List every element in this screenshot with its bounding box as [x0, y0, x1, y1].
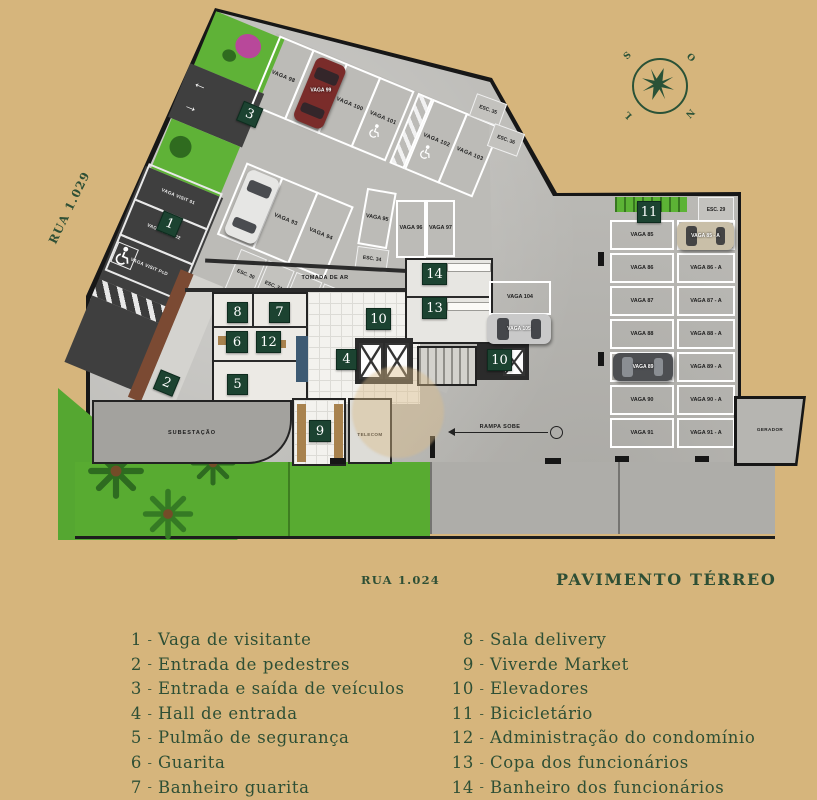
compass-l: L	[624, 109, 635, 120]
page-title: PAVIMENTO TÉRREO	[556, 570, 776, 589]
legend-label: Bicicletário	[490, 706, 593, 723]
marker-8-delivery-room: 8	[227, 302, 248, 323]
parking-stall: VAGA 91	[610, 418, 674, 448]
substation-label: SUBESTAÇÃO	[94, 430, 290, 437]
legend-item: 10 - Elevadores	[448, 677, 755, 702]
parking-stall: VAGA 86 - A	[677, 253, 735, 283]
legend-item: 7 - Banheiro guarita	[116, 776, 405, 800]
compass-o: O	[684, 53, 696, 65]
parking-stall: VAGA 88 - A	[677, 319, 735, 349]
marker-10-elevators: 10	[487, 349, 512, 371]
legend-dash: -	[474, 634, 490, 647]
legend-label: Hall de entrada	[158, 706, 298, 723]
legend-dash: -	[474, 658, 490, 671]
ramp-arrow-line	[452, 432, 548, 433]
legend-number: 3	[116, 681, 142, 698]
wall-segment	[598, 352, 604, 366]
marker-6-guardhouse: 6	[226, 331, 248, 353]
street-name-left: RUA 1.029	[46, 169, 93, 246]
compass-n: N	[683, 106, 695, 118]
legend-item: 9 - Viverde Market	[448, 653, 755, 678]
parking-stall: VAGA 90 - A	[677, 385, 735, 415]
marker-14-staff-bathroom: 14	[422, 263, 447, 285]
right-parking-grid: VAGA 85VAGA 85 - AVAGA 86VAGA 86 - AVAGA…	[610, 220, 735, 448]
parking-stall: VAGA 91 - A	[677, 418, 735, 448]
entry-arrow-icon: →	[182, 97, 202, 117]
ramp-marker-circle	[550, 426, 563, 439]
marker-9-market: 9	[309, 420, 331, 442]
legend-item: 12 - Administração do condomínio	[448, 726, 755, 751]
marker-13-staff-pantry: 13	[422, 297, 447, 319]
legend-number: 14	[448, 780, 474, 797]
car-silver: VAGA 105	[487, 314, 551, 344]
legend-dash: -	[142, 732, 158, 745]
legend-column-left: 1 - Vaga de visitante 2 - Entrada de ped…	[116, 628, 405, 800]
wall-segment	[695, 456, 709, 462]
legend-dash: -	[142, 757, 158, 770]
legend-number: 8	[448, 632, 474, 649]
staff-rooms	[405, 258, 493, 344]
parking-stall: VAGA 87 - A	[677, 286, 735, 316]
legend-item: 8 - Sala delivery	[448, 628, 755, 653]
air-intake-label: TOMADA DE AR	[290, 275, 360, 282]
marker-11-bike-storage: 11	[637, 201, 661, 223]
palm-tree-icon	[140, 486, 196, 542]
legend-label: Copa dos funcionários	[490, 755, 689, 772]
shrub	[166, 133, 195, 162]
legend-dash: -	[142, 708, 158, 721]
legend-number: 10	[448, 681, 474, 698]
car-label: VAGA 89	[613, 364, 673, 370]
legend-item: 13 - Copa dos funcionários	[448, 751, 755, 776]
substation-room: SUBESTAÇÃO	[92, 400, 292, 464]
compass-rose: S O L N	[622, 48, 698, 124]
generator-room: GERADOR	[737, 399, 803, 463]
generator-label: GERADOR	[737, 427, 803, 433]
legend-number: 11	[448, 706, 474, 723]
marker-7-guard-bathroom: 7	[269, 302, 290, 323]
legend-number: 7	[116, 780, 142, 797]
legend-number: 5	[116, 730, 142, 747]
legend-item: 11 - Bicicletário	[448, 702, 755, 727]
legend-dash: -	[142, 781, 158, 794]
legend-item: 6 - Guarita	[116, 751, 405, 776]
wall-segment	[615, 456, 629, 462]
parking-stall: VAGA 97	[426, 200, 455, 257]
car-label: VAGA 99	[305, 87, 337, 93]
car-label: VAGA 85 - A	[677, 233, 734, 239]
marker-5-security-airlock: 5	[227, 374, 248, 395]
legend-number: 4	[116, 706, 142, 723]
parking-stall: VAGA 85	[610, 220, 674, 250]
legend-item: 5 - Pulmão de segurança	[116, 726, 405, 751]
ramp-label: RAMPA SOBE	[470, 424, 530, 431]
legend-number: 13	[448, 755, 474, 772]
legend-item: 2 - Entrada de pedestres	[116, 653, 405, 678]
legend-label: Viverde Market	[490, 657, 629, 674]
sidewalk-joint	[430, 462, 432, 534]
legend-label: Administração do condomínio	[490, 730, 755, 747]
wall-segment	[330, 458, 346, 464]
legend-item: 1 - Vaga de visitante	[116, 628, 405, 653]
legend-label: Banheiro dos funcionários	[490, 780, 724, 797]
legend-number: 6	[116, 755, 142, 772]
legend-label: Banheiro guarita	[158, 780, 310, 797]
legend-dash: -	[142, 683, 158, 696]
ramp-arrow-head	[444, 428, 455, 436]
parking-stall: VAGA 87	[610, 286, 674, 316]
legend-number: 1	[116, 632, 142, 649]
car-label: VAGA 105	[487, 326, 551, 332]
marker-4-entrance-hall: 4	[336, 349, 357, 370]
legend-dash: -	[474, 757, 490, 770]
wall-segment	[598, 252, 604, 266]
sidewalk-joint	[618, 462, 620, 534]
car-dark: VAGA 89	[613, 353, 673, 381]
legend-dash: -	[474, 781, 490, 794]
legend-label: Vaga de visitante	[158, 632, 312, 649]
compass-s: S	[623, 51, 634, 62]
parking-stall: VAGA 104	[489, 281, 551, 315]
marker-10-elevators: 10	[366, 308, 391, 330]
legend-label: Sala delivery	[490, 632, 606, 649]
legend-item: 4 - Hall de entrada	[116, 702, 405, 727]
legend-item: 14 - Banheiro dos funcionários	[448, 776, 755, 800]
wall-segment	[545, 458, 561, 464]
legend-dash: -	[474, 708, 490, 721]
legend-label: Entrada e saída de veículos	[158, 681, 405, 698]
watermark	[352, 366, 444, 458]
reception-desk	[296, 336, 308, 382]
front-sidewalk	[430, 462, 775, 534]
lawn-divider	[288, 462, 290, 538]
legend-dash: -	[474, 732, 490, 745]
street-name-bottom: RUA 1.024	[361, 573, 440, 587]
legend-column-right: 8 - Sala delivery 9 - Viverde Market 10 …	[448, 628, 755, 800]
legend-dash: -	[142, 658, 158, 671]
parking-stall: VAGA 86	[610, 253, 674, 283]
parking-stall: VAGA 90	[610, 385, 674, 415]
car-tan: VAGA 85 - A	[677, 222, 734, 250]
legend-label: Elevadores	[490, 681, 589, 698]
parking-stall: VAGA 88	[610, 319, 674, 349]
legend-item: 3 - Entrada e saída de veículos	[116, 677, 405, 702]
legend-label: Entrada de pedestres	[158, 657, 350, 674]
legend-dash: -	[142, 634, 158, 647]
marker-12-condo-admin: 12	[256, 331, 281, 353]
legend-dash: -	[474, 683, 490, 696]
legend-number: 2	[116, 657, 142, 674]
exit-arrow-icon: ←	[191, 75, 211, 95]
legend-number: 9	[448, 657, 474, 674]
legend-label: Pulmão de segurança	[158, 730, 350, 747]
parking-stall: VAGA 96	[396, 200, 426, 258]
parking-stall: VAGA 89 - A	[677, 352, 735, 382]
legend-number: 12	[448, 730, 474, 747]
legend-label: Guarita	[158, 755, 225, 772]
